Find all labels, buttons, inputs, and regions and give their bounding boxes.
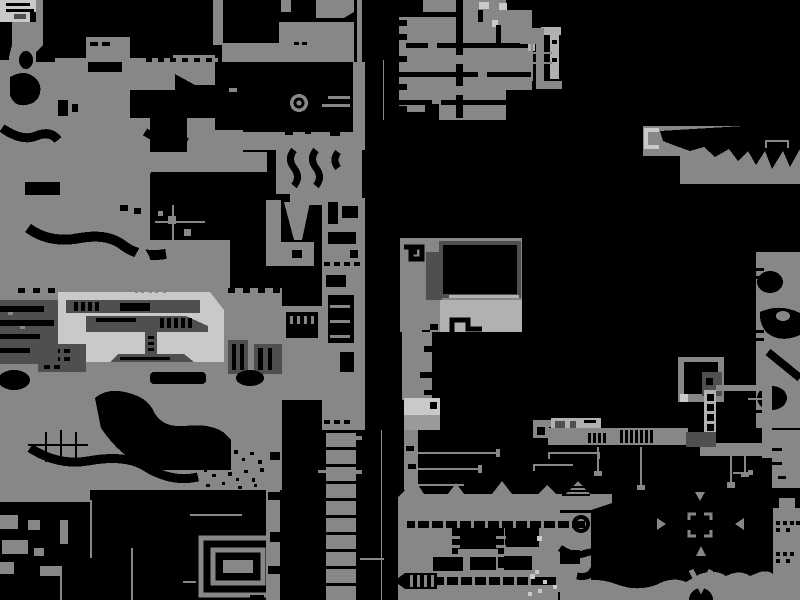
ring-eye-icon xyxy=(290,94,308,112)
game-map-screen xyxy=(0,0,800,600)
light-block xyxy=(0,0,36,22)
vault-room xyxy=(400,238,522,336)
world-map-canvas[interactable] xyxy=(0,0,800,600)
